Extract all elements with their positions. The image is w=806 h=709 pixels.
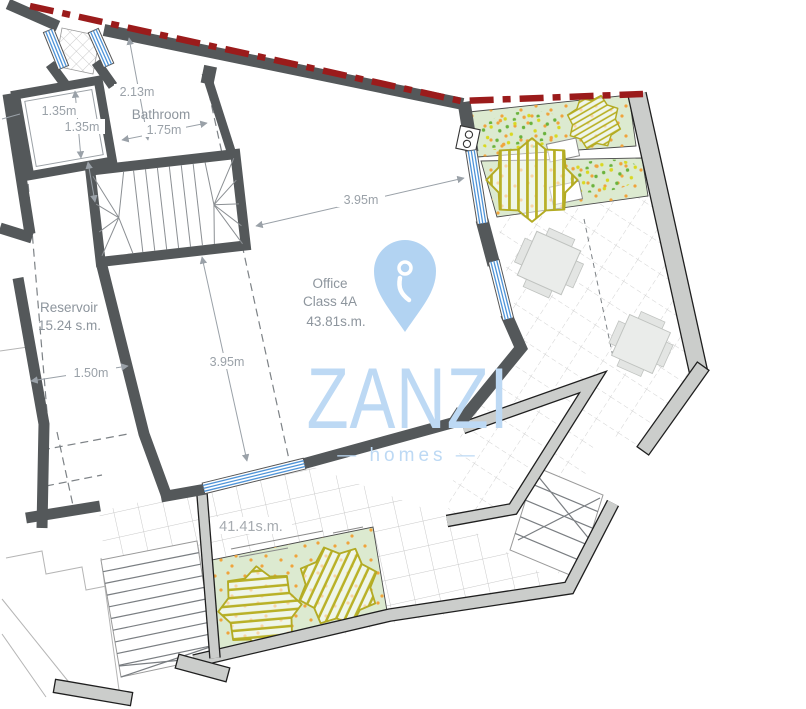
- wall-stub: [201, 65, 217, 85]
- staircase-room: [90, 154, 245, 262]
- dim-135a: 1.35m: [42, 104, 77, 118]
- tree-canopy: [486, 138, 577, 222]
- dim-135b: 1.35m: [65, 120, 100, 134]
- wall: [206, 73, 231, 151]
- label-reservoir: Reservoir: [40, 300, 98, 315]
- dim-175: 1.75m: [147, 123, 182, 137]
- zanzi-logo-tagline: — homes —: [337, 445, 479, 466]
- dim-395v: 3.95m: [210, 355, 245, 369]
- label-bathroom: Bathroom: [132, 107, 191, 122]
- label-office: Office: [312, 276, 347, 291]
- floor-plan-canvas: ZANZI — homes — 2.13m 1.35m 1.35m 1.75m …: [0, 0, 806, 709]
- label-terrace-area: 41.41s.m.: [219, 519, 283, 535]
- projection-line: [42, 434, 128, 450]
- dim-150: 1.50m: [74, 366, 109, 380]
- projection-line: [57, 432, 74, 510]
- wall: [482, 220, 494, 265]
- projection-line: [46, 475, 102, 486]
- wall: [18, 278, 44, 528]
- location-pin-icon: [374, 240, 436, 332]
- wall: [102, 266, 167, 497]
- wall-fixture: [456, 126, 480, 153]
- dim-395h: 3.95m: [344, 193, 379, 207]
- projection-line: [206, 80, 290, 464]
- label-office-class: Class 4A: [303, 294, 357, 309]
- zanzi-logo-brand: ZANZI: [307, 351, 510, 447]
- dim-213: 2.13m: [120, 85, 155, 99]
- label-reservoir-area: 15.24 s.m.: [38, 318, 101, 333]
- label-office-area: 43.81s.m.: [306, 314, 365, 329]
